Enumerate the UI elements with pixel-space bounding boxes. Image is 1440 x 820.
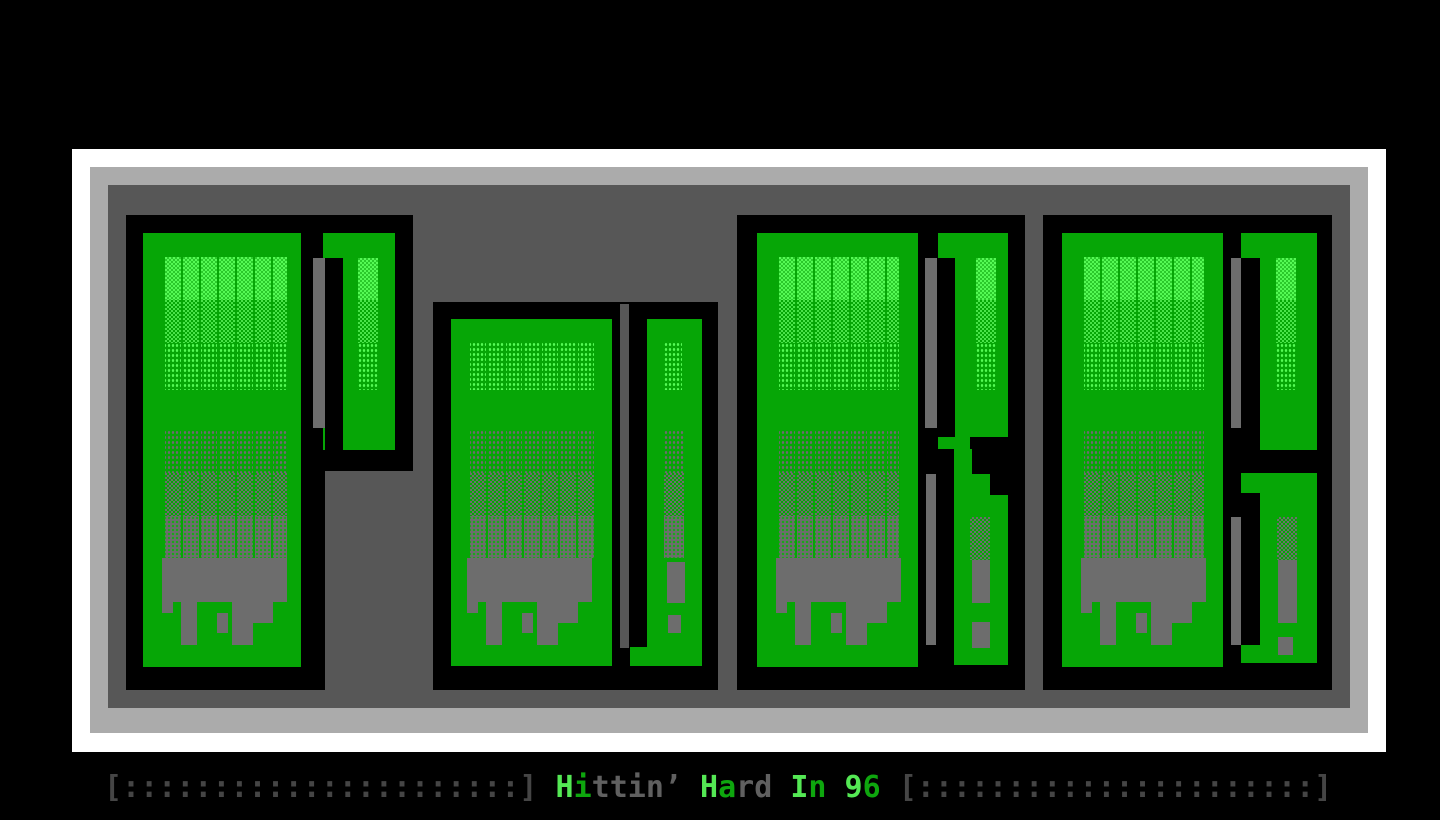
blob-leg <box>1151 602 1172 645</box>
caption-segment: ttin’ <box>592 770 700 805</box>
blob-leg <box>1081 602 1092 613</box>
caption-segment: a <box>718 770 736 805</box>
caption-segment: H <box>556 770 574 805</box>
blob-leg <box>1172 602 1192 623</box>
ansi-art-screen: [::::::::::::::::::::::] Hittin’ Hard In… <box>0 0 1440 820</box>
letter-e-arm-shine-sparse <box>1276 343 1296 390</box>
caption-segment: 9 <box>845 770 863 805</box>
letter-e-column-lines <box>1082 257 1204 558</box>
caption-segment: n <box>808 770 826 805</box>
caption-segment <box>826 770 844 805</box>
caption: [::::::::::::::::::::::] Hittin’ Hard In… <box>104 769 1332 807</box>
letter-e-arm-melt-drop <box>1278 637 1293 655</box>
blob-leg <box>1100 602 1116 645</box>
letter-e-arm-shine-dense <box>1276 258 1296 300</box>
letter-e-arm-shine-mid <box>1276 300 1296 343</box>
caption-segment: [::::::::::::::::::::::] <box>881 770 1333 805</box>
letter-e-notch-top <box>1241 258 1260 450</box>
caption-segment: 6 <box>863 770 881 805</box>
caption-segment: rd <box>736 770 790 805</box>
letter-e <box>0 0 1440 820</box>
letter-e-notch-bottom <box>1241 493 1260 645</box>
letter-e-highlight-bar-bottom <box>1231 517 1241 645</box>
caption-segment: [::::::::::::::::::::::] <box>104 770 556 805</box>
blob-leg <box>1136 613 1147 633</box>
letter-e-arm-melt <box>1278 560 1297 623</box>
caption-segment: H <box>700 770 718 805</box>
letter-e-highlight-bar-top <box>1231 258 1241 428</box>
melt-shadow <box>1081 558 1206 602</box>
letter-e-arm-shade <box>1277 517 1297 560</box>
caption-segment: I <box>790 770 808 805</box>
caption-segment: i <box>574 770 592 805</box>
